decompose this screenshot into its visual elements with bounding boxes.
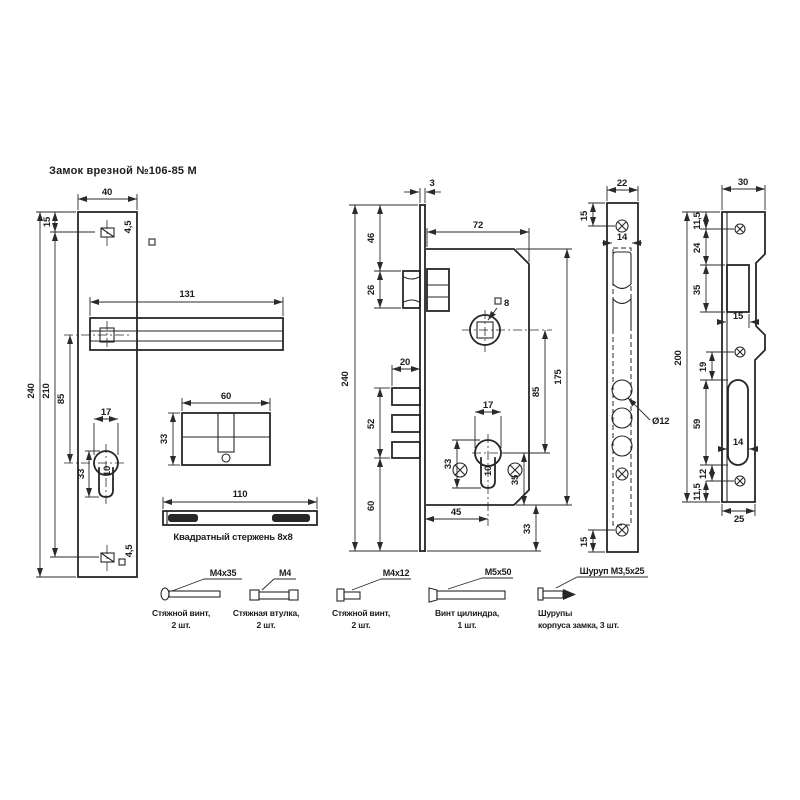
latch-bolt <box>403 271 420 308</box>
square-symbol <box>495 298 501 304</box>
dim-cyl-slot: 10 <box>483 466 494 476</box>
dim-hole-bottom: 4,5 <box>124 544 135 558</box>
screw-hole <box>735 224 745 234</box>
lock-body-view: 8 3 46 26 72 <box>340 178 572 551</box>
page: Замок врезной №106-85 М 40 <box>0 0 800 800</box>
square-rod-view: 110 Квадратный стержень 8х8 <box>163 489 317 543</box>
screw-head <box>429 588 437 602</box>
dim-bolt-to-bottom: 60 <box>366 501 377 511</box>
drawing-title: Замок врезной №106-85 М <box>49 165 197 177</box>
bolt-hole <box>612 380 632 400</box>
screw-shaft <box>543 591 563 598</box>
screw-shaft <box>344 592 360 599</box>
deadbolt-bar <box>392 442 420 458</box>
strike-bolt-opening <box>728 380 748 465</box>
screw-shaft <box>169 591 220 597</box>
engineering-drawing: Замок врезной №106-85 М 40 <box>0 0 800 800</box>
square-symbol <box>149 239 155 245</box>
bolt-hole <box>612 408 632 428</box>
hardware-caption: 2 шт. <box>172 620 191 630</box>
faceplate-outline <box>607 203 638 552</box>
hardware-caption: Стяжной винт, <box>152 608 210 618</box>
cylinder-view: 60 33 <box>159 391 270 465</box>
dim-fp-bottom-offset: 15 <box>579 536 590 547</box>
dim-strike-below-opening: 12 <box>698 469 709 479</box>
dim-cyl-height: 33 <box>443 459 454 469</box>
dim-cylinder-length: 60 <box>221 391 231 402</box>
rod-knurl-left <box>168 514 198 522</box>
dim-slot-width: 14 <box>617 232 628 243</box>
rod-knurl-right <box>272 514 310 522</box>
screw-hole <box>735 476 745 486</box>
dim-keyhole-width: 17 <box>101 407 111 418</box>
faceplate-slot-dashed <box>613 248 631 525</box>
hardware-caption: 1 шт. <box>458 620 477 630</box>
dim-strike-gap: 19 <box>698 362 709 372</box>
screw-hole <box>616 524 628 536</box>
cylinder-body <box>182 413 270 465</box>
hardware-caption: 2 шт. <box>352 620 371 630</box>
hardware-caption: Стяжная втулка, <box>233 608 299 618</box>
rod-caption: Квадратный стержень 8х8 <box>173 532 292 543</box>
hardware-label: М4х12 <box>383 568 410 578</box>
hardware-label: М4х35 <box>210 568 237 578</box>
dim-fp-top-offset: 15 <box>579 210 590 221</box>
bolt-hole <box>612 436 632 456</box>
dim-latch-height: 26 <box>366 285 377 295</box>
dim-strike-bolt-opening: 59 <box>692 419 703 429</box>
screw-shaft <box>437 591 505 599</box>
hardware-caption: Шурупы <box>538 608 572 618</box>
dim-keyhole-slot: 10 <box>102 466 113 476</box>
hardware-caption: корпуса замка, 3 шт. <box>538 620 619 630</box>
dim-keyhole-height: 33 <box>76 469 87 479</box>
dim-strike-bottom-width: 25 <box>734 514 745 525</box>
dim-hole-dia: Ø12 <box>652 416 669 427</box>
dim-rod-length: 110 <box>233 489 248 500</box>
latch-cutout-lower <box>613 299 631 330</box>
dim-strike-height: 200 <box>673 350 684 365</box>
dim-strike-bottom-offset: 11,5 <box>692 483 703 501</box>
dim-strike-top-offset: 11,5 <box>692 212 703 230</box>
hardware-item-screw-m5x50: М5х50 Винт цилиндра, 1 шт. <box>429 567 513 630</box>
dim-case-height: 175 <box>553 368 564 384</box>
handle-plate-view: 40 15 210 240 85 131 17 33 10 4,5 4,5 <box>26 187 283 577</box>
sleeve-body <box>259 592 289 599</box>
screw-hole <box>735 347 745 357</box>
cylinder-screw-hole <box>453 463 467 477</box>
sleeve-end <box>289 590 298 600</box>
plate-outline <box>78 212 137 577</box>
sleeve-end <box>250 590 259 600</box>
latch-cutout-upper <box>613 252 631 289</box>
dim-case-depth: 72 <box>473 220 483 231</box>
latch-body <box>427 269 449 311</box>
dim-hole-top: 4,5 <box>123 220 134 234</box>
strike-plate-view: 30 200 11,5 24 35 15 19 59 14 12 11,5 <box>673 177 765 525</box>
dim-strike-latch-opening: 35 <box>692 284 703 295</box>
hardware-caption: 2 шт. <box>257 620 276 630</box>
deadbolt-bar <box>392 415 420 432</box>
dim-plate-height: 240 <box>26 383 37 398</box>
dim-bottom-margin: 33 <box>522 524 533 534</box>
screw-head <box>161 588 169 600</box>
hardware-label: М4 <box>279 568 291 578</box>
dim-cyl-width: 17 <box>483 400 493 411</box>
strike-latch-opening <box>727 265 749 312</box>
dim-handle-length: 131 <box>179 289 195 300</box>
dim-cyl-to-bottom: 35 <box>510 474 521 485</box>
dim-holes-span: 210 <box>41 383 52 398</box>
dim-backset: 45 <box>451 507 462 518</box>
deadbolt-bar <box>392 388 420 405</box>
hardware-label: М5х50 <box>485 567 512 577</box>
dim-bolt-block: 52 <box>366 419 377 429</box>
screw-head <box>538 588 543 600</box>
dim-faceplate-thk: 3 <box>429 178 434 189</box>
cylinder-screw-hole <box>508 463 522 477</box>
dim-plate-width: 40 <box>102 187 112 198</box>
dim-top-to-latch: 46 <box>366 233 377 243</box>
screw-hole <box>616 468 628 480</box>
hardware-item-wood-screw: Шуруп М3,5х25 Шурупы корпуса замка, 3 шт… <box>538 566 648 630</box>
screw-head <box>337 589 344 601</box>
dim-strike-bolt-width: 14 <box>733 437 744 448</box>
dim-follower-to-cyl: 85 <box>531 386 542 397</box>
dim-strike-to-latch: 24 <box>692 242 703 253</box>
hardware-item-sleeve-m4: М4 Стяжная втулка, 2 шт. <box>233 568 299 630</box>
screw-hole <box>616 220 628 232</box>
dim-follower-square: 8 <box>504 298 509 309</box>
dim-bolt-throw: 20 <box>400 357 410 368</box>
dim-strike-width: 30 <box>738 177 748 188</box>
hardware-caption: Винт цилиндра, <box>435 608 499 618</box>
hardware-caption: Стяжной винт, <box>332 608 390 618</box>
hardware-item-screw-m4x35: М4х35 Стяжной винт, 2 шт. <box>152 568 242 630</box>
screw-tip <box>563 589 576 600</box>
cylinder-channel <box>218 413 234 452</box>
dim-strike-latch-width: 15 <box>733 311 744 322</box>
handle-bar <box>90 318 283 350</box>
faceplate-view: Ø12 22 15 14 15 <box>579 178 669 552</box>
dim-faceplate-width: 22 <box>617 178 627 189</box>
square-symbol <box>119 559 125 565</box>
dim-axis-to-keyhole: 85 <box>56 393 67 404</box>
hardware-item-screw-m4x12: М4х12 Стяжной винт, 2 шт. <box>332 568 411 630</box>
dim-top-offset: 15 <box>42 216 53 227</box>
cylinder-cam-dot <box>222 454 230 462</box>
hardware-label: Шуруп М3,5х25 <box>580 566 645 576</box>
dim-cylinder-height: 33 <box>159 434 170 444</box>
dim-body-height: 240 <box>340 371 351 386</box>
